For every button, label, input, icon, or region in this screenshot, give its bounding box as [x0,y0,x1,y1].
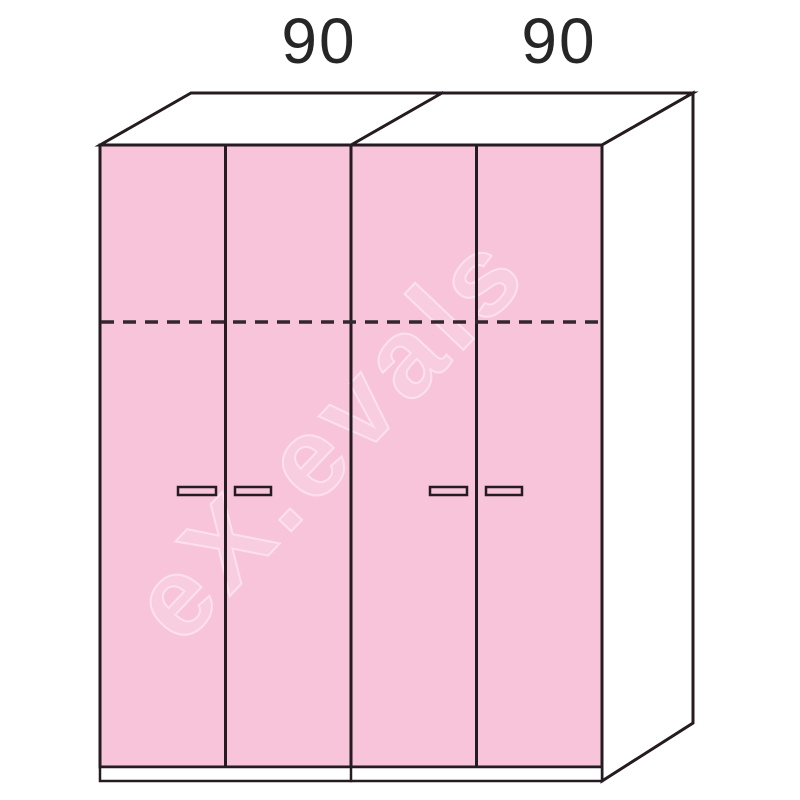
dimension-label-right: 90 [521,5,596,77]
door-4-fill [477,145,603,767]
wardrobe-diagram: eX.evals 90 90 [0,0,800,800]
door-1-fill [100,145,226,767]
door-handle-4-icon [486,487,522,495]
door-handle-2-icon [235,487,271,495]
wardrobe-drawing-canvas: eX.evals 90 90 [0,0,800,800]
door-handle-1-icon [178,487,216,495]
door-handle-3-icon [430,487,467,495]
dimension-label-left: 90 [281,5,356,77]
side-panel [602,93,693,781]
